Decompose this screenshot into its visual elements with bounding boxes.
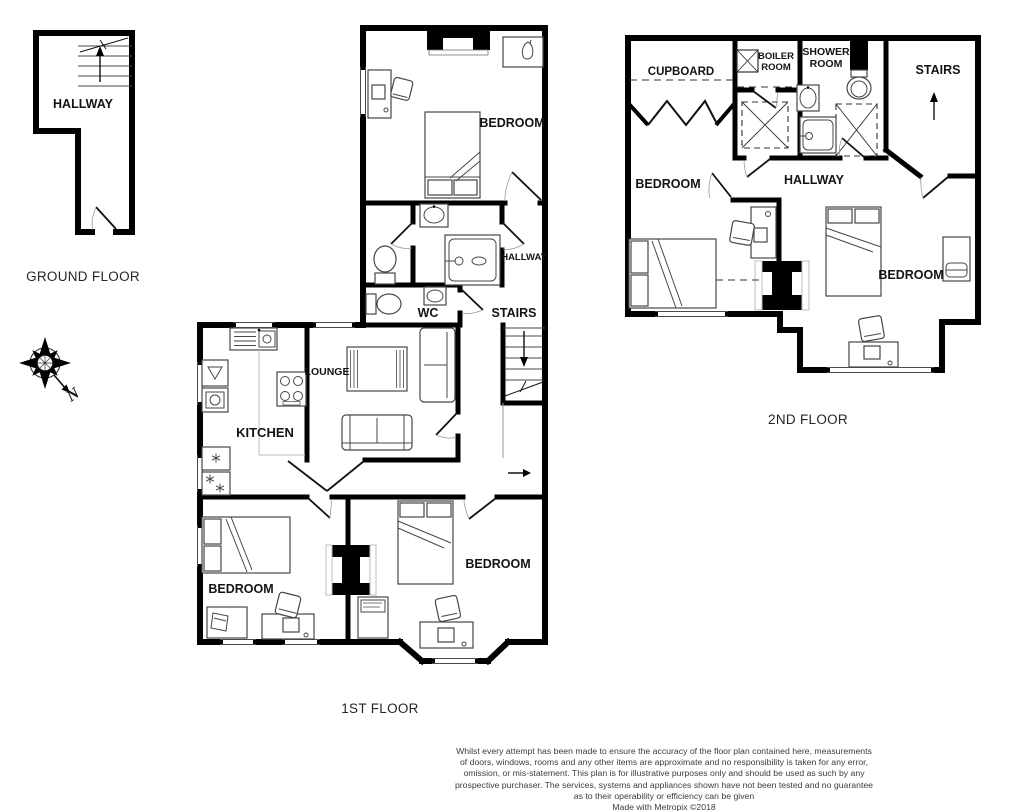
chair-icon bbox=[858, 315, 885, 342]
toilet-icon bbox=[366, 294, 401, 314]
room-label-shower-room: SHOWER bbox=[802, 46, 850, 58]
stairs-icon bbox=[78, 38, 132, 86]
room-label-wc: WC bbox=[418, 306, 439, 320]
shower-icon bbox=[800, 117, 836, 153]
disclaimer-line: as to their operability or efficiency ca… bbox=[438, 791, 890, 802]
chair-icon bbox=[275, 592, 302, 619]
freezer-icon bbox=[202, 472, 230, 495]
room-label-boiler-room: ROOM bbox=[761, 62, 791, 73]
desk-icon bbox=[368, 70, 391, 118]
room-label-shower-room: ROOM bbox=[810, 58, 843, 70]
floor-title-first: 1ST FLOOR bbox=[341, 701, 418, 716]
bifold-doors-icon bbox=[629, 101, 734, 125]
bed-icon bbox=[398, 501, 453, 584]
desk-icon bbox=[420, 622, 473, 648]
room-label-stairs: STAIRS bbox=[492, 306, 537, 320]
ground-floor-plan: HALLWAY GROUND FLOOR bbox=[26, 33, 140, 284]
desk-icon bbox=[262, 614, 314, 639]
entrance-arrow-icon bbox=[508, 469, 531, 477]
room-label-bedroom: BEDROOM bbox=[878, 268, 943, 282]
disclaimer-line: Whilst every attempt has been made to en… bbox=[438, 746, 890, 757]
shower-icon bbox=[445, 235, 500, 285]
floor-title-second: 2ND FLOOR bbox=[768, 412, 848, 427]
floorplan-canvas: HALLWAY GROUND FLOOR N bbox=[0, 0, 1020, 811]
sink-icon bbox=[797, 85, 819, 111]
second-floor-plan: CUPBOARD BOILER ROOM SHOWER ROOM STAIRS … bbox=[628, 35, 978, 427]
bedside-table-icon bbox=[358, 597, 388, 638]
floor-title-ground: GROUND FLOOR bbox=[26, 269, 140, 284]
dishwasher-icon bbox=[202, 360, 228, 386]
washing-machine-icon bbox=[202, 388, 228, 412]
chair-icon bbox=[390, 77, 413, 101]
sofa-icon bbox=[420, 328, 455, 402]
entry-door-leaf bbox=[92, 207, 116, 230]
chair-icon bbox=[435, 595, 461, 622]
sofa-icon bbox=[342, 415, 412, 450]
bed-icon bbox=[629, 239, 716, 308]
desk-icon bbox=[751, 207, 776, 258]
room-label-stairs: STAIRS bbox=[916, 63, 961, 77]
desk-icon bbox=[849, 342, 898, 367]
disclaimer-text: Whilst every attempt has been made to en… bbox=[438, 746, 890, 811]
sink-icon bbox=[420, 204, 448, 227]
bed-icon bbox=[425, 112, 480, 198]
disclaimer-line: of doors, windows, rooms and any other i… bbox=[438, 757, 890, 768]
stairs-icon bbox=[503, 328, 545, 458]
hob-icon bbox=[277, 372, 306, 406]
room-label-kitchen: KITCHEN bbox=[236, 425, 294, 440]
toilet-icon bbox=[847, 70, 871, 99]
metropix-credit: Made with Metropix ©2018 bbox=[438, 802, 890, 811]
room-label-bedroom: BEDROOM bbox=[208, 582, 273, 596]
chair-icon bbox=[729, 220, 754, 245]
room-label-cupboard: CUPBOARD bbox=[648, 66, 714, 78]
chimney-breast-icon bbox=[427, 31, 490, 55]
room-label-bedroom: BEDROOM bbox=[465, 557, 530, 571]
room-label-hallway-ground: HALLWAY bbox=[53, 97, 114, 111]
toilet-icon bbox=[374, 246, 396, 284]
chimney-breast-icon bbox=[850, 35, 868, 70]
room-label-bedroom: BEDROOM bbox=[479, 116, 544, 130]
wardrobe-icon bbox=[503, 37, 543, 67]
sink-icon bbox=[424, 287, 446, 305]
room-label-bedroom: BEDROOM bbox=[635, 177, 700, 191]
north-arrow-icon: N bbox=[54, 375, 84, 406]
disclaimer-line: omission, or mis-statement. This plan is… bbox=[438, 768, 890, 779]
table-icon bbox=[347, 347, 407, 391]
room-label-hallway: HALLWAY bbox=[784, 173, 845, 187]
bed-icon bbox=[826, 207, 881, 296]
first-floor-plan: BEDROOM HALLWAY WC STAIRS LOUNGE KITCHEN… bbox=[198, 28, 548, 716]
bed-icon bbox=[202, 517, 290, 573]
fridge-icon bbox=[202, 447, 230, 470]
room-label-boiler-room: BOILER bbox=[758, 51, 794, 62]
dresser-icon bbox=[943, 237, 970, 281]
room-label-lounge: LOUNGE bbox=[305, 366, 350, 378]
chimney-breast-icon bbox=[332, 545, 370, 595]
cabinet-icon bbox=[207, 607, 247, 638]
stairs-up-arrow-icon bbox=[930, 92, 938, 120]
compass-icon: N bbox=[19, 337, 84, 406]
disclaimer-line: prospective purchaser. The services, sys… bbox=[438, 780, 890, 791]
chimney-breast-icon bbox=[762, 261, 802, 310]
kitchen-sink-icon bbox=[230, 328, 277, 350]
room-label-hallway: HALLWAY bbox=[501, 252, 547, 263]
boiler-icon bbox=[737, 50, 758, 72]
floorplan-page: HALLWAY GROUND FLOOR N bbox=[0, 0, 1020, 811]
